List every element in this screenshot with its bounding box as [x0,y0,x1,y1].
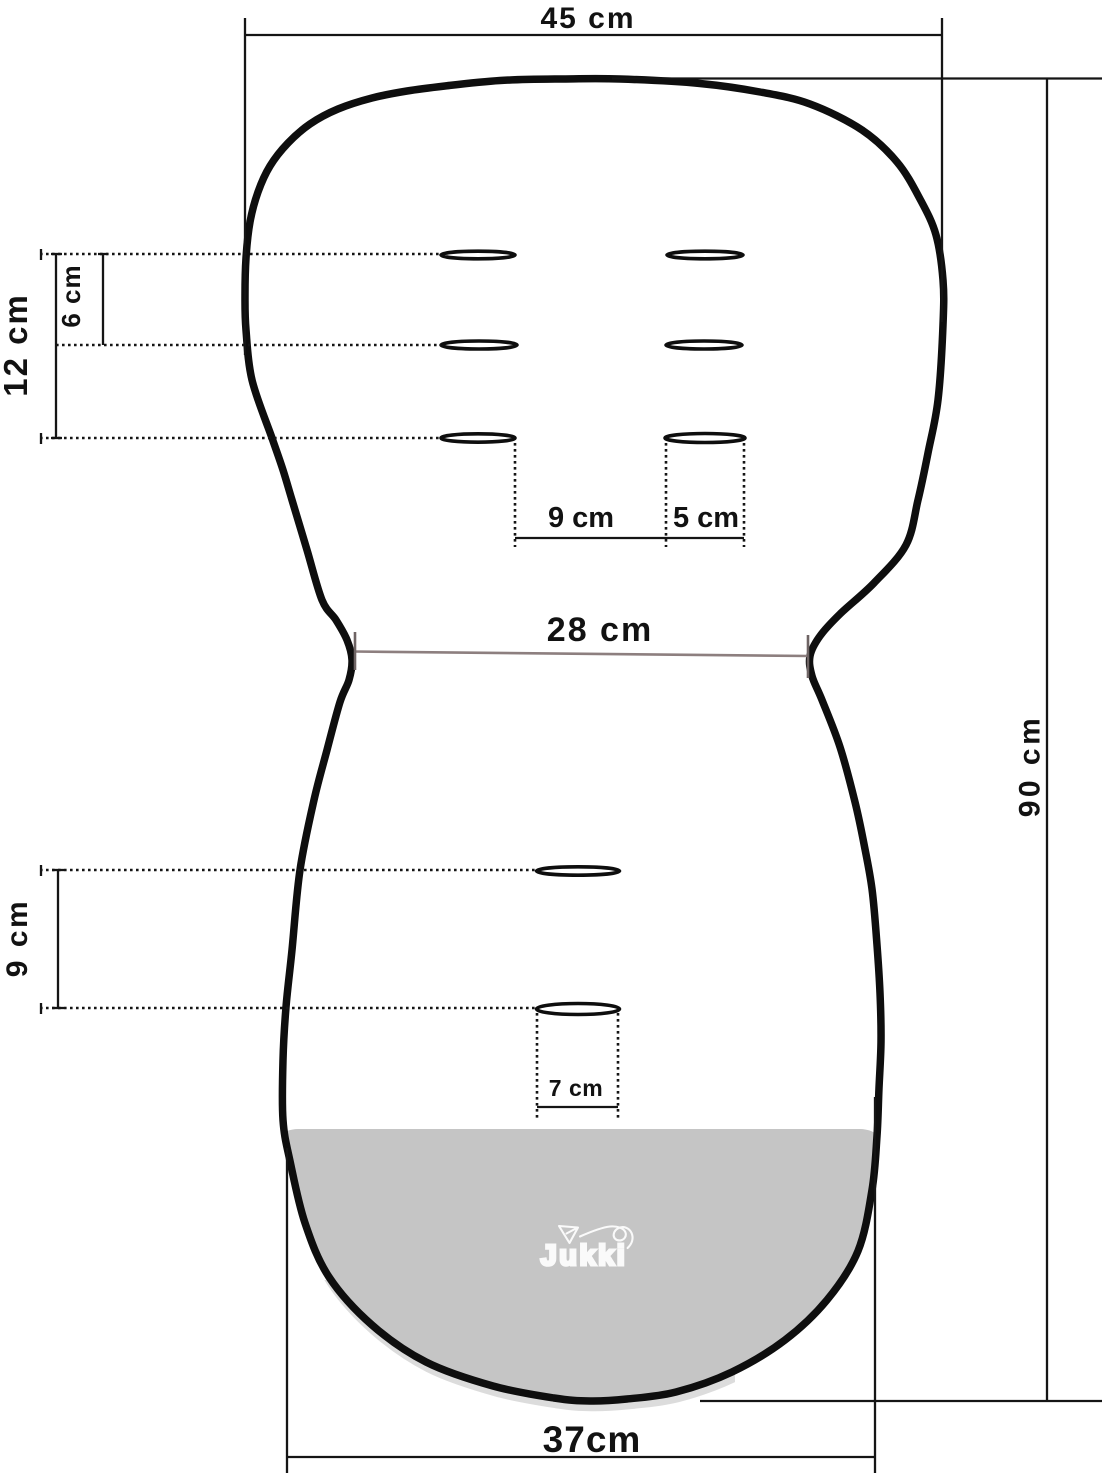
svg-text:28 cm: 28 cm [547,611,653,649]
svg-text:5 cm: 5 cm [673,502,739,534]
svg-text:90 cm: 90 cm [1014,715,1047,818]
svg-text:12 cm: 12 cm [0,293,34,397]
svg-text:37cm: 37cm [543,1419,642,1460]
svg-text:45 cm: 45 cm [540,2,635,35]
svg-text:6 cm: 6 cm [56,264,86,327]
svg-text:Jukki: Jukki [541,1240,628,1272]
svg-text:9 cm: 9 cm [1,899,34,977]
svg-text:9 cm: 9 cm [548,502,614,534]
svg-text:7 cm: 7 cm [549,1075,603,1101]
